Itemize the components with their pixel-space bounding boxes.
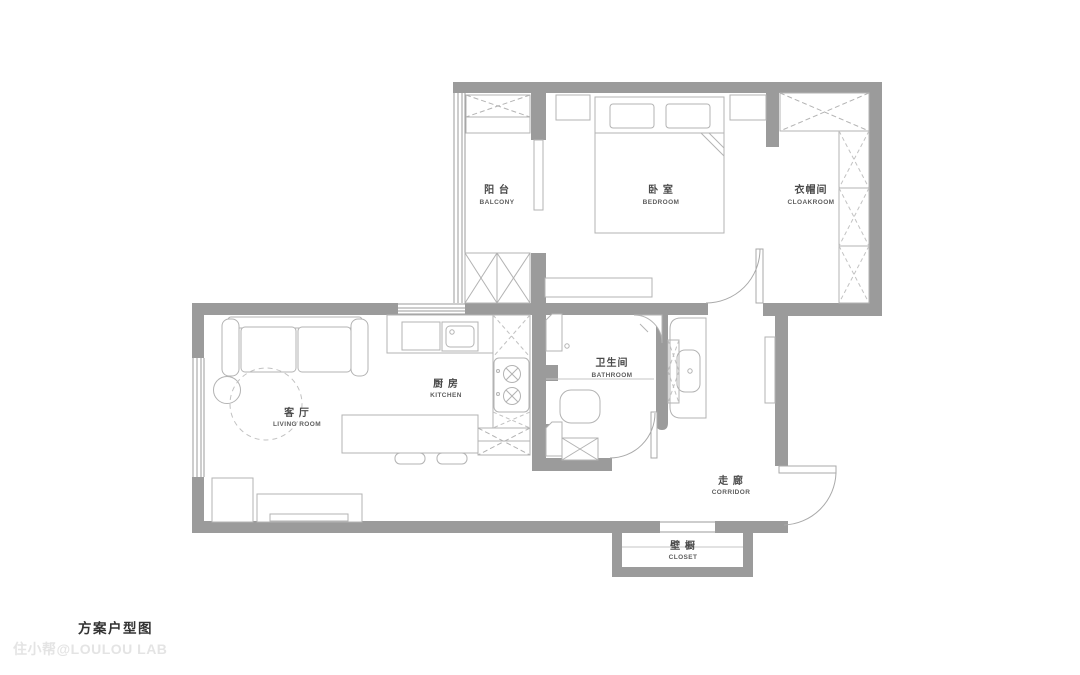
- corridor-wall-panel: [765, 337, 775, 403]
- bathroom-storage-box: [562, 438, 598, 460]
- kitchen-pass-window: [398, 303, 465, 315]
- label-bathroom-en: BATHROOM: [592, 372, 633, 379]
- wall-balcony-divider-top: [531, 93, 546, 140]
- label-living-room-zh: 客 厅: [283, 406, 310, 419]
- label-closet-zh: 壁 橱: [670, 539, 696, 552]
- wall-kitchen-bathroom: [532, 315, 546, 459]
- wall-bottom-left: [192, 521, 660, 533]
- label-living-room-en: LIVING ROOM: [273, 421, 321, 428]
- sofa-armrest-left: [222, 319, 239, 376]
- nightstand-right: [730, 95, 766, 120]
- pillow-left: [610, 104, 654, 128]
- sofa-cushion: [241, 327, 296, 372]
- kitchen-storage-box: [478, 428, 530, 455]
- cutting-board: [402, 322, 440, 350]
- label-bedroom-en: BEDROOM: [643, 199, 680, 206]
- entry-door: [779, 466, 836, 525]
- living-room-window: [192, 358, 204, 477]
- closet-threshold: [660, 521, 715, 533]
- label-closet-en: CLOSET: [669, 554, 698, 561]
- vanity: [668, 318, 706, 418]
- bed: [595, 97, 724, 233]
- bathtub: [560, 390, 600, 423]
- label-bedroom-zh: 卧 室: [648, 183, 674, 196]
- label-kitchen-en: KITCHEN: [430, 392, 462, 399]
- label-bathroom-zh: 卫生间: [596, 356, 629, 369]
- floor-plan-page: 阳 台 BALCONY 卧 室 BEDROOM 衣帽间 CLOAKROOM 卫生…: [0, 0, 1080, 675]
- label-balcony-zh: 阳 台: [484, 183, 510, 196]
- tv: [270, 514, 348, 521]
- label-corridor-zh: 走 廊: [717, 474, 744, 487]
- wall-right: [869, 82, 882, 316]
- label-corridor-en: CORRIDOR: [712, 489, 751, 496]
- label-cloakroom-en: CLOAKROOM: [788, 199, 835, 206]
- side-cabinet: [212, 478, 253, 522]
- sofa: [222, 317, 368, 376]
- wall-mid-left: [192, 303, 398, 315]
- bathroom-shelf: [546, 422, 562, 456]
- kitchen-island: [342, 415, 478, 464]
- label-kitchen-zh: 厨 房: [433, 377, 459, 390]
- cloakroom-wardrobe-top: [780, 93, 869, 131]
- wall-top: [453, 82, 882, 93]
- wall-left-upper: [192, 303, 204, 358]
- stool: [395, 453, 425, 464]
- bedroom-door: [706, 249, 763, 303]
- watermark: 住小帮@LOULOU LAB: [13, 639, 167, 659]
- kitchen-sink: [442, 322, 478, 351]
- page-title: 方案户型图: [78, 617, 153, 637]
- wall-closet-right: [743, 533, 753, 577]
- label-cloakroom-zh: 衣帽间: [795, 183, 828, 196]
- balcony-glass-panel: [534, 140, 543, 210]
- wall-mid-center: [465, 303, 708, 315]
- sofa-armrest-right: [351, 319, 368, 376]
- floor-plan-drawing: 阳 台 BALCONY 卧 室 BEDROOM 衣帽间 CLOAKROOM 卫生…: [0, 0, 1080, 675]
- cloakroom-wardrobe-right: [839, 131, 869, 303]
- balcony-window: [453, 93, 465, 303]
- balcony-storage-bottom: [465, 253, 530, 303]
- bathroom-door: [610, 412, 657, 458]
- side-table: [214, 377, 241, 404]
- wall-cloakroom-divider: [766, 93, 779, 147]
- floor-drain: [565, 344, 569, 348]
- bathroom-fixtures: [546, 314, 662, 460]
- stove: [494, 358, 529, 412]
- label-balcony-en: BALCONY: [480, 199, 515, 206]
- vanity-faucet: [688, 369, 692, 373]
- wall-corridor-right: [775, 314, 788, 466]
- wall-closet-bottom: [612, 567, 753, 577]
- sofa-cushion: [298, 327, 351, 372]
- washing-machine: [546, 314, 562, 351]
- nightstand-left: [556, 95, 590, 120]
- bedroom-bench: [545, 278, 652, 297]
- rug-dashed: [230, 368, 302, 440]
- wall-balcony-divider-bottom: [531, 253, 546, 303]
- wall-bottom-right: [715, 521, 788, 533]
- pillow-right: [666, 104, 710, 128]
- stool: [437, 453, 467, 464]
- balcony-storage-top: [466, 95, 530, 133]
